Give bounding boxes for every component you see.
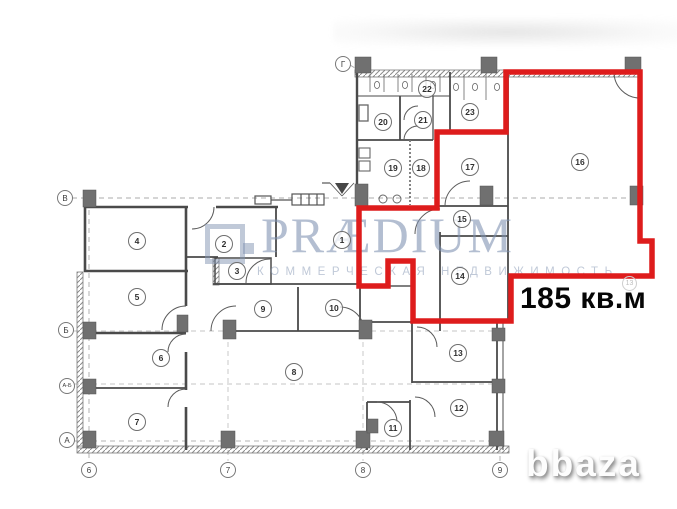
- room-bubble-15: 15: [453, 210, 471, 228]
- axis-bubble-7: 7: [220, 462, 236, 478]
- room-bubble-18: 18: [412, 159, 430, 177]
- room-bubble-19: 19: [384, 159, 402, 177]
- room-bubble-12: 12: [450, 399, 468, 417]
- floorplan-screenshot: PRÆDIUM КОММЕРЧЕСКАЯ НЕДВИЖИМОСТЬ 1 2 3 …: [0, 0, 677, 509]
- room-bubble-17: 17: [461, 158, 479, 176]
- room-bubble-23: 23: [461, 103, 479, 121]
- area-size-label: 185 кв.м: [520, 282, 646, 316]
- room-bubble-11: 11: [384, 419, 402, 437]
- room-bubble-10: 10: [325, 299, 343, 317]
- room-bubble-20: 20: [374, 113, 392, 131]
- axis-bubble-9: 9: [492, 462, 508, 478]
- room-bubble-7: 7: [128, 413, 146, 431]
- room-bubble-4: 4: [128, 232, 146, 250]
- highlight-outline-layer: [0, 0, 677, 509]
- room-bubble-21: 21: [414, 111, 432, 129]
- axis-bubble-g: Г: [335, 56, 351, 72]
- room-bubble-2: 2: [215, 235, 233, 253]
- room-bubble-9: 9: [254, 300, 272, 318]
- axis-bubble-v: В: [57, 190, 73, 206]
- room-bubble-3: 3: [228, 262, 246, 280]
- room-bubble-6: 6: [152, 349, 170, 367]
- axis-bubble-6: 6: [81, 462, 97, 478]
- room-bubble-16: 16: [571, 153, 589, 171]
- room-bubble-13: 13: [449, 344, 467, 362]
- axis-bubble-a: А: [59, 432, 75, 448]
- room-bubble-14: 14: [451, 267, 469, 285]
- axis-bubble-b: Б: [58, 322, 74, 338]
- room-bubble-1: 1: [333, 231, 351, 249]
- room-bubble-8: 8: [285, 363, 303, 381]
- room-bubble-5: 5: [128, 288, 146, 306]
- axis-bubble-8: 8: [355, 462, 371, 478]
- axis-bubble-a-b: А-Б: [59, 378, 75, 394]
- bbaza-watermark: bbaza: [526, 443, 641, 485]
- room-bubble-22: 22: [418, 80, 436, 98]
